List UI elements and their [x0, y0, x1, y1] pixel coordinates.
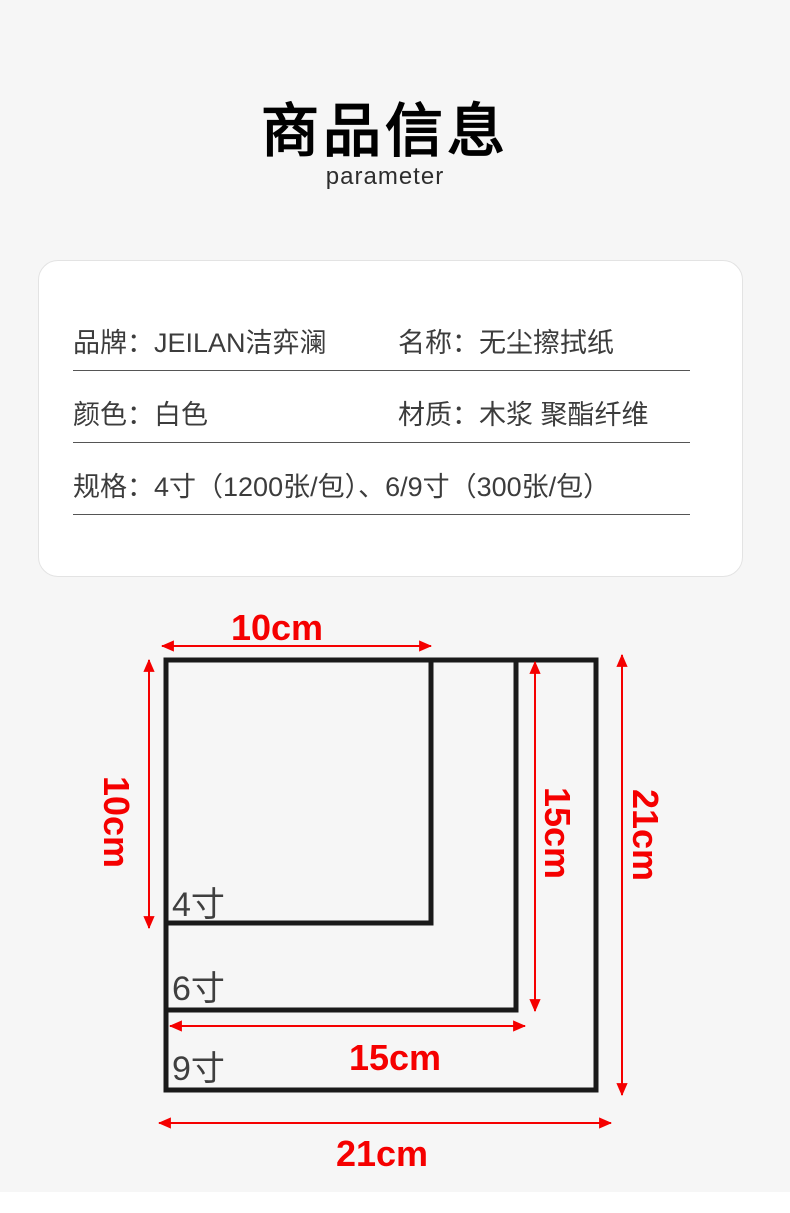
spec-cell-brand: 品牌： JEILAN洁弈澜	[73, 321, 398, 360]
specification-value: 4寸（1200张/包）、6/9寸（300张/包）	[154, 465, 610, 504]
product-info-page: 商品信息 parameter 品牌： JEILAN洁弈澜 名称： 无尘擦拭纸 颜…	[0, 0, 790, 1213]
dim-label-21cm-bottom: 21cm	[336, 1133, 428, 1174]
size-9inch-label: 9寸	[172, 1050, 225, 1088]
page-subtitle: parameter	[0, 163, 770, 191]
dim-label-21cm-vertical: 21cm	[625, 789, 666, 881]
size-4inch-label: 4寸	[172, 886, 225, 924]
dim-label-10cm-left: 10cm	[96, 776, 137, 868]
bottom-white-strip	[0, 1192, 790, 1213]
spec-row-brand-name: 品牌： JEILAN洁弈澜 名称： 无尘擦拭纸	[73, 299, 690, 371]
spec-row-color-material: 颜色： 白色 材质： 木浆 聚酯纤维	[73, 371, 690, 443]
brand-label: 品牌：	[73, 321, 154, 360]
name-value: 无尘擦拭纸	[479, 321, 614, 360]
size-6inch-outline	[166, 660, 516, 1010]
material-value: 木浆 聚酯纤维	[479, 393, 649, 432]
spec-table: 品牌： JEILAN洁弈澜 名称： 无尘擦拭纸 颜色： 白色 材质： 木浆 聚酯…	[38, 260, 743, 577]
dim-label-10cm-top: 10cm	[231, 607, 323, 648]
size-diagram: 4寸 6寸 9寸 10cm 10cm 15cm 21cm 15cm 21cm	[0, 600, 790, 1175]
spec-cell-color: 颜色： 白色	[73, 393, 398, 432]
size-6inch-label: 6寸	[172, 970, 225, 1008]
spec-cell-material: 材质： 木浆 聚酯纤维	[398, 393, 690, 432]
dim-label-15cm-bottom: 15cm	[349, 1037, 441, 1078]
size-4inch-outline	[166, 660, 431, 923]
spec-cell-name: 名称： 无尘擦拭纸	[398, 321, 690, 360]
spec-cell-specification: 规格： 4寸（1200张/包）、6/9寸（300张/包）	[73, 465, 610, 504]
spec-row-specification: 规格： 4寸（1200张/包）、6/9寸（300张/包）	[73, 443, 690, 515]
color-value: 白色	[154, 393, 208, 432]
dim-label-15cm-vertical: 15cm	[537, 787, 578, 879]
page-title: 商品信息	[0, 84, 770, 168]
name-label: 名称：	[398, 321, 479, 360]
brand-value: JEILAN洁弈澜	[154, 321, 327, 360]
material-label: 材质：	[398, 393, 479, 432]
specification-label: 规格：	[73, 465, 154, 504]
color-label: 颜色：	[73, 393, 154, 432]
